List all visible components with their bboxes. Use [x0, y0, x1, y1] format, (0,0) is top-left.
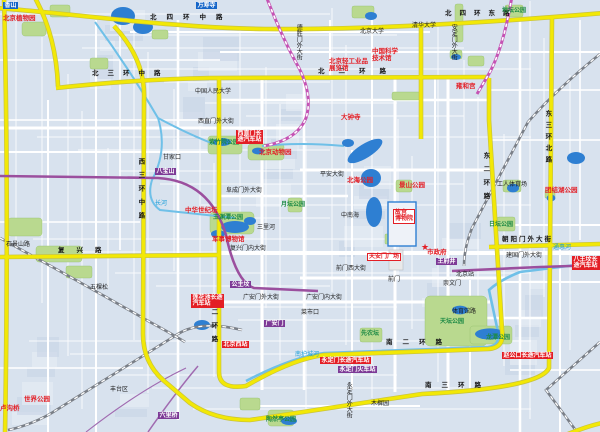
city-map-canvas[interactable]: [0, 0, 600, 432]
